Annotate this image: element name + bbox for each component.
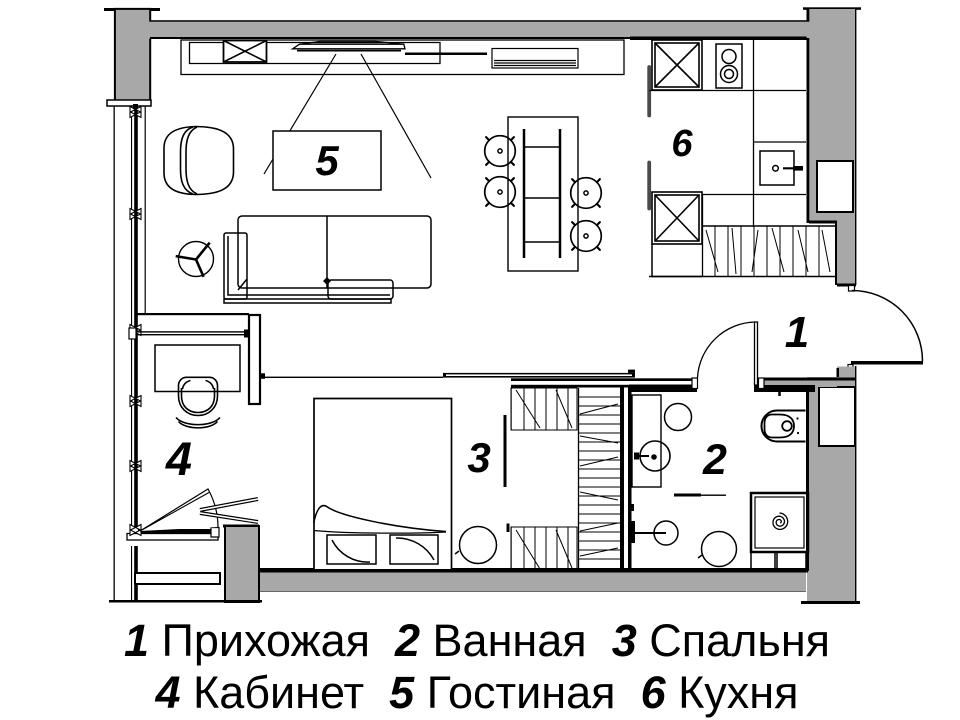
svg-text:1 Прихожая 2 Ванная 3 Спальн: 1 Прихожая 2 Ванная 3 Спальня (124, 615, 830, 666)
svg-text:3: 3 (467, 434, 490, 481)
svg-text:2: 2 (702, 436, 727, 484)
svg-text:1: 1 (785, 308, 809, 357)
svg-text:4 Кабинет 5 Гостиная 6 Кухня: 4 Кабинет 5 Гостиная 6 Кухня (154, 667, 798, 718)
svg-text:4: 4 (165, 432, 192, 485)
svg-text:6: 6 (671, 123, 693, 165)
svg-text:5: 5 (315, 137, 339, 184)
